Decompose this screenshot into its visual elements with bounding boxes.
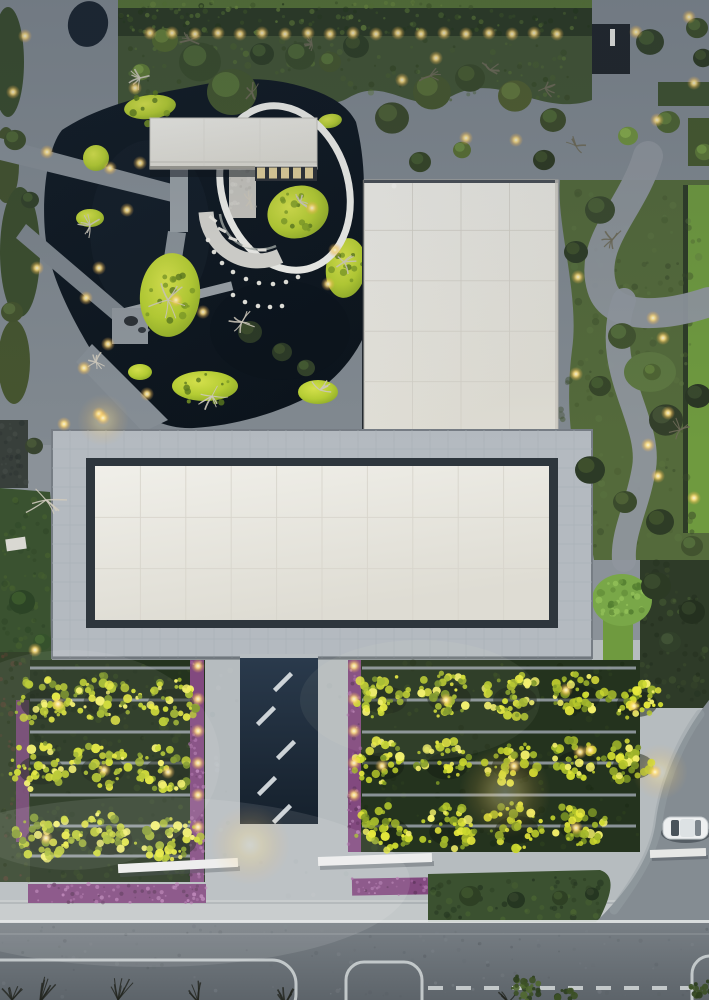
garden-beds <box>649 662 652 665</box>
ground-base <box>385 992 389 996</box>
garden-beds <box>621 456 624 459</box>
garden-beds <box>1 581 7 587</box>
south-court <box>547 752 552 757</box>
garden-beds <box>555 880 559 884</box>
garden-beds <box>555 913 561 919</box>
ginkgo-trees-leaf <box>363 764 368 769</box>
south-court <box>410 880 413 883</box>
south-court <box>608 672 612 676</box>
garden-beds <box>639 607 645 613</box>
garden-beds <box>682 651 687 656</box>
ground-base <box>486 963 490 967</box>
ginkgo-trees-leaf <box>443 811 447 815</box>
lights-glow <box>573 745 587 759</box>
road-markings <box>529 977 536 984</box>
ginkgo-trees-leaf <box>462 827 470 835</box>
ginkgo-trees-leaf <box>375 807 383 815</box>
garden-beds <box>702 689 707 694</box>
garden-beds <box>45 553 51 559</box>
ginkgo-trees-leaf <box>467 836 476 845</box>
shrubs <box>649 511 664 525</box>
ground-base <box>705 928 708 931</box>
garden-beds <box>693 651 699 657</box>
garden-beds <box>636 583 640 587</box>
ginkgo-trees-leaf <box>652 704 656 708</box>
ginkgo-trees-leaf <box>652 690 655 693</box>
aerial-photo <box>0 0 709 1000</box>
lights-glow <box>507 759 521 773</box>
ginkgo-trees-leaf <box>576 697 582 703</box>
south-court <box>560 844 566 850</box>
ginkgo-trees-leaf <box>572 671 578 677</box>
road-markings <box>519 997 522 1000</box>
south-court <box>349 803 351 805</box>
atmosphere <box>300 640 540 760</box>
garden-beds <box>690 529 695 534</box>
shrubs <box>35 635 45 644</box>
ginkgo-trees-leaf <box>561 812 570 821</box>
ground-base <box>364 982 368 986</box>
garden-beds <box>664 567 669 572</box>
ginkgo-trees-leaf <box>577 771 582 776</box>
south-court <box>537 754 542 759</box>
garden-beds <box>458 916 462 920</box>
ground-base <box>624 994 626 996</box>
ginkgo-trees-leaf <box>596 757 600 761</box>
garden-beds <box>666 458 669 461</box>
garden-beds <box>597 880 604 887</box>
ginkgo-trees-leaf <box>383 781 387 785</box>
garden-beds <box>626 604 628 606</box>
garden-beds <box>41 574 47 580</box>
road-markings <box>561 989 564 992</box>
ground-base <box>573 948 576 951</box>
garden-beds <box>608 604 613 609</box>
lights-glow <box>559 683 573 697</box>
garden-beds <box>31 549 37 555</box>
ginkgo-trees-leaf <box>600 688 609 697</box>
ground-base <box>548 976 550 978</box>
ginkgo-trees-leaf <box>456 773 460 777</box>
ground-base <box>585 967 587 969</box>
garden-beds <box>9 472 12 475</box>
ginkgo-trees-leaf <box>568 738 574 744</box>
garden-beds <box>643 673 648 678</box>
ginkgo-trees-leaf <box>574 702 581 709</box>
garden-beds <box>570 909 577 916</box>
ginkgo-trees-leaf <box>523 743 527 747</box>
garden-beds <box>700 680 704 684</box>
ground-base <box>579 962 581 964</box>
ginkgo-trees-leaf <box>443 764 448 769</box>
road-markings <box>532 987 535 990</box>
garden-beds <box>613 601 618 606</box>
garden-beds <box>487 906 493 912</box>
garden-beds <box>23 479 29 485</box>
garden-beds <box>33 558 37 562</box>
south-court <box>419 884 421 886</box>
ground-base <box>335 989 339 993</box>
ginkgo-trees-leaf <box>625 738 630 743</box>
ground-base <box>691 943 694 946</box>
ground-base <box>193 976 195 978</box>
ground-base <box>537 939 540 942</box>
lights-glow <box>347 788 361 802</box>
garden-beds <box>9 457 13 461</box>
ground-base <box>210 994 212 996</box>
ground-base <box>368 990 372 994</box>
ground-base <box>146 967 149 970</box>
ginkgo-trees-leaf <box>447 775 450 778</box>
ginkgo-trees-leaf <box>577 677 584 684</box>
road-markings <box>515 984 519 988</box>
garden-beds <box>12 497 18 503</box>
garden-beds <box>593 521 598 526</box>
garden-beds <box>430 889 436 895</box>
ginkgo-trees-leaf <box>452 817 457 822</box>
ground-base <box>419 935 422 938</box>
ginkgo-trees-leaf <box>578 841 583 846</box>
garden-beds <box>601 612 604 615</box>
garden-beds <box>436 905 442 911</box>
ground-base <box>337 952 341 956</box>
ginkgo-trees-leaf <box>557 700 563 706</box>
ground-base <box>657 992 661 996</box>
ground-base <box>219 674 223 678</box>
garden-beds <box>560 906 563 909</box>
garden-beds <box>42 514 47 519</box>
garden-beds <box>30 632 33 635</box>
garden-beds <box>646 532 652 538</box>
garden-beds <box>595 597 602 604</box>
garden-beds <box>2 469 8 475</box>
ginkgo-trees-leaf <box>618 709 622 713</box>
ginkgo-trees-leaf <box>565 706 574 715</box>
ginkgo-trees-leaf <box>419 836 426 843</box>
garden-beds <box>619 596 624 601</box>
ground-base <box>537 944 541 948</box>
garden-beds <box>1 618 8 625</box>
road-markings <box>535 981 541 987</box>
garden-beds <box>15 455 19 459</box>
road-markings <box>702 984 708 990</box>
garden-beds <box>613 581 618 586</box>
lights-glow <box>191 659 205 673</box>
garden-beds <box>694 690 701 697</box>
road-markings <box>530 984 533 987</box>
south-court <box>349 823 351 825</box>
shrubs <box>615 492 628 504</box>
ginkgo-trees-leaf <box>647 685 656 694</box>
ginkgo-trees-leaf <box>568 770 572 774</box>
ginkgo-trees-leaf <box>553 685 557 689</box>
ginkgo-trees-leaf <box>359 771 365 777</box>
ground-base <box>558 935 560 937</box>
garden-beds <box>682 621 685 624</box>
ginkgo-trees-leaf <box>382 818 390 826</box>
ground-base <box>314 951 318 955</box>
shrubs <box>661 633 673 644</box>
ground-base <box>508 981 510 983</box>
garden-beds <box>669 488 673 492</box>
south-court <box>622 811 625 814</box>
garden-beds <box>24 575 27 578</box>
south-court <box>625 804 629 808</box>
ginkgo-trees-leaf <box>607 690 616 699</box>
ground-base <box>558 950 560 952</box>
lights-glow <box>375 759 389 773</box>
ginkgo-trees-leaf <box>625 715 629 719</box>
ground-base <box>457 948 461 952</box>
ground-base <box>478 942 482 946</box>
lights-glow <box>687 491 701 505</box>
ginkgo-trees-leaf <box>406 831 412 837</box>
garden-beds <box>672 469 675 472</box>
ginkgo-trees-leaf <box>401 842 406 847</box>
ginkgo-trees-leaf <box>575 688 579 692</box>
ginkgo-trees-leaf <box>381 832 390 841</box>
south-court <box>383 785 386 788</box>
ground-base <box>431 949 434 952</box>
ground-base <box>461 939 464 942</box>
shrubs <box>586 888 594 895</box>
shrubs <box>554 892 563 900</box>
garden-beds <box>666 694 671 699</box>
ginkgo-trees-leaf <box>576 808 585 817</box>
garden-beds <box>457 905 461 909</box>
garden-beds <box>593 913 599 919</box>
ground-base <box>452 984 455 987</box>
south-court <box>350 810 352 812</box>
atmosphere <box>0 0 709 450</box>
garden-beds <box>5 631 10 636</box>
ground-base <box>434 981 437 984</box>
shrubs <box>578 458 595 473</box>
lights-glow <box>627 699 641 713</box>
ginkgo-trees-leaf <box>609 767 618 776</box>
ginkgo-trees-leaf <box>361 813 370 822</box>
garden-beds <box>554 876 557 879</box>
garden-beds <box>446 898 453 905</box>
south-court <box>356 821 360 825</box>
garden-beds <box>17 627 20 630</box>
ginkgo-trees-leaf <box>427 815 434 822</box>
lights-glow <box>347 756 361 770</box>
ground-base <box>399 995 401 997</box>
garden-beds <box>596 909 600 913</box>
garden-beds <box>524 909 530 915</box>
garden-beds <box>4 532 8 536</box>
road-markings <box>198 981 199 1000</box>
ginkgo-trees-leaf <box>554 691 559 696</box>
ginkgo-trees-leaf <box>658 702 663 707</box>
garden-beds <box>654 633 659 638</box>
garden-beds <box>42 624 46 628</box>
ground-base <box>210 712 215 717</box>
garden-beds <box>661 679 666 684</box>
garden-beds <box>665 466 668 469</box>
ginkgo-trees-leaf <box>565 764 572 771</box>
ground-base <box>227 668 233 674</box>
ground-base <box>216 685 221 690</box>
ginkgo-trees-leaf <box>586 763 595 772</box>
garden-beds <box>599 453 603 457</box>
street-furniture <box>695 820 701 836</box>
ginkgo-trees-leaf <box>592 822 598 828</box>
ground-base <box>591 963 595 967</box>
ground-base <box>411 958 415 962</box>
garden-beds <box>610 587 615 592</box>
garden-beds <box>674 534 682 542</box>
ground-base <box>374 946 376 948</box>
ginkgo-trees-leaf <box>566 837 570 841</box>
south-court <box>347 809 350 812</box>
garden-beds <box>687 518 693 524</box>
garden-beds <box>16 642 23 649</box>
garden-beds <box>35 522 39 526</box>
ground-base <box>330 993 332 995</box>
garden-beds <box>10 466 13 469</box>
garden-beds <box>1 475 5 479</box>
ground-base <box>605 991 609 995</box>
garden-beds <box>2 457 5 460</box>
garden-beds <box>537 914 543 920</box>
ground-base <box>443 935 446 938</box>
garden-beds <box>33 572 36 575</box>
south-court <box>455 805 458 808</box>
garden-beds <box>667 610 674 617</box>
garden-beds <box>23 514 28 519</box>
garden-beds <box>4 553 7 556</box>
garden-beds <box>614 608 620 614</box>
ground-base <box>178 977 181 980</box>
ground-base <box>472 988 475 991</box>
ginkgo-trees-leaf <box>635 745 641 751</box>
garden-beds <box>531 895 536 900</box>
road-markings <box>511 987 514 990</box>
ginkgo-trees-leaf <box>636 686 641 691</box>
ginkgo-trees-leaf <box>558 803 565 810</box>
garden-beds <box>9 585 14 590</box>
ginkgo-trees-leaf <box>526 746 531 751</box>
ginkgo-trees-leaf <box>621 771 625 775</box>
garden-beds <box>597 589 604 596</box>
ground-base <box>513 971 516 974</box>
ginkgo-trees-leaf <box>472 829 478 835</box>
ground-base <box>638 939 642 943</box>
garden-beds <box>1 463 3 465</box>
ginkgo-trees-leaf <box>444 817 450 823</box>
ginkgo-trees-leaf <box>581 706 587 712</box>
garden-beds <box>438 882 444 888</box>
ginkgo-trees-leaf <box>566 805 573 812</box>
garden-beds <box>572 885 575 888</box>
garden-beds <box>13 470 18 475</box>
garden-beds <box>451 907 457 913</box>
ginkgo-trees-leaf <box>612 740 622 750</box>
south-court <box>401 781 405 785</box>
ground-base <box>2 981 6 985</box>
ground-base <box>269 963 272 966</box>
ginkgo-trees-leaf <box>460 845 465 850</box>
south-court <box>422 889 426 893</box>
ginkgo-trees-leaf <box>522 846 525 849</box>
ginkgo-trees-leaf <box>647 698 650 701</box>
ginkgo-trees-leaf <box>586 674 591 679</box>
ginkgo-trees-leaf <box>358 754 361 757</box>
street-furniture <box>680 819 695 837</box>
garden-beds <box>495 907 498 910</box>
ginkgo-trees-leaf <box>550 815 555 820</box>
garden-beds <box>22 526 26 530</box>
garden-beds <box>593 544 597 548</box>
garden-beds <box>653 559 660 566</box>
south-court <box>413 891 417 895</box>
road-markings <box>702 990 707 995</box>
south-court <box>416 814 418 816</box>
south-court <box>351 820 354 823</box>
ground-base <box>272 986 274 988</box>
garden-beds <box>446 880 451 885</box>
ginkgo-trees-leaf <box>553 701 557 705</box>
garden-beds <box>13 637 19 643</box>
ginkgo-trees-leaf <box>439 822 443 826</box>
ground-base <box>73 969 75 971</box>
road-markings <box>513 976 519 982</box>
garden-beds <box>2 627 5 630</box>
road-markings <box>695 995 698 998</box>
garden-beds <box>631 592 635 596</box>
ginkgo-trees-leaf <box>435 827 442 834</box>
garden-beds <box>490 888 495 893</box>
south-court <box>424 885 428 889</box>
garden-beds <box>639 662 645 668</box>
garden-beds <box>659 650 663 654</box>
garden-beds <box>634 593 640 599</box>
shrubs <box>682 602 696 615</box>
garden-beds <box>554 885 558 889</box>
ground-base <box>585 930 588 933</box>
ginkgo-trees-leaf <box>563 679 566 682</box>
ginkgo-trees-leaf <box>451 845 458 852</box>
garden-beds <box>532 879 535 882</box>
garden-beds <box>658 616 663 621</box>
ground-base <box>680 949 682 951</box>
garden-beds <box>681 680 687 686</box>
ginkgo-trees-leaf <box>443 769 447 773</box>
road-markings <box>689 984 694 989</box>
garden-beds <box>444 912 450 918</box>
ginkgo-trees-leaf <box>575 759 584 768</box>
garden-beds <box>683 663 686 666</box>
garden-beds <box>687 597 690 600</box>
garden-beds <box>16 464 21 469</box>
ginkgo-trees-leaf <box>607 752 615 760</box>
south-court <box>392 785 397 790</box>
garden-beds <box>44 586 49 591</box>
south-court <box>540 842 545 847</box>
south-court <box>605 726 609 730</box>
ginkgo-trees-leaf <box>453 822 457 826</box>
ground-base <box>444 992 446 994</box>
lights-glow <box>569 821 583 835</box>
garden-beds <box>655 677 662 684</box>
ground-base <box>609 936 611 938</box>
ginkgo-trees-leaf <box>381 773 385 777</box>
garden-beds <box>15 484 18 487</box>
ground-base <box>454 931 456 933</box>
road-markings <box>572 992 575 995</box>
